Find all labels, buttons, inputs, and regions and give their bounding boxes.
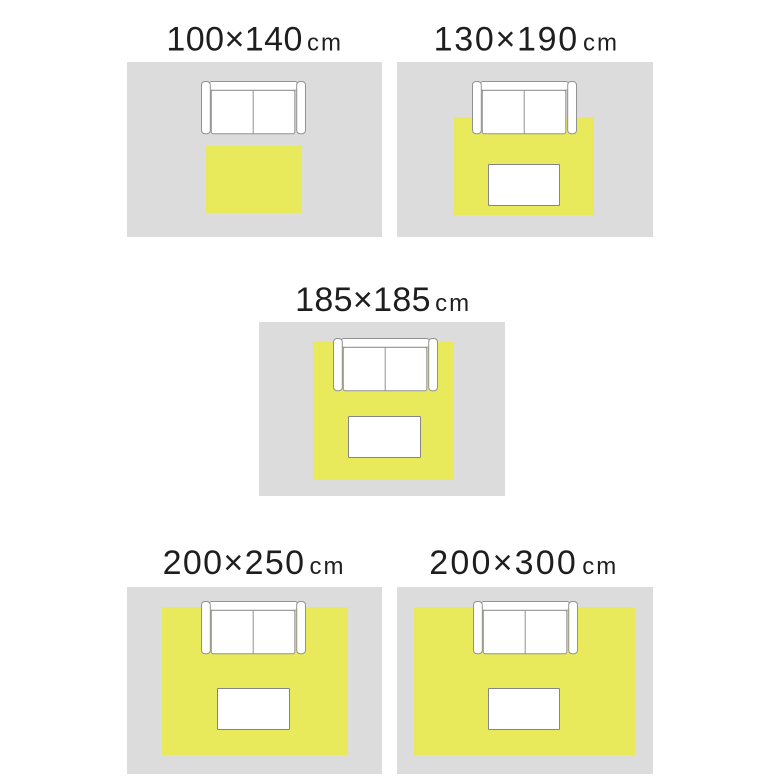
svg-text:cm: cm	[310, 553, 346, 580]
svg-text:100×140: 100×140	[166, 20, 302, 58]
svg-text:cm: cm	[435, 290, 471, 317]
svg-text:cm: cm	[583, 29, 619, 56]
svg-text:200×300: 200×300	[429, 544, 578, 582]
svg-text:185×185: 185×185	[295, 281, 431, 319]
svg-text:200×250: 200×250	[163, 544, 306, 582]
svg-text:130×190: 130×190	[434, 20, 579, 58]
svg-text:cm: cm	[582, 553, 618, 580]
svg-text:cm: cm	[307, 29, 343, 56]
